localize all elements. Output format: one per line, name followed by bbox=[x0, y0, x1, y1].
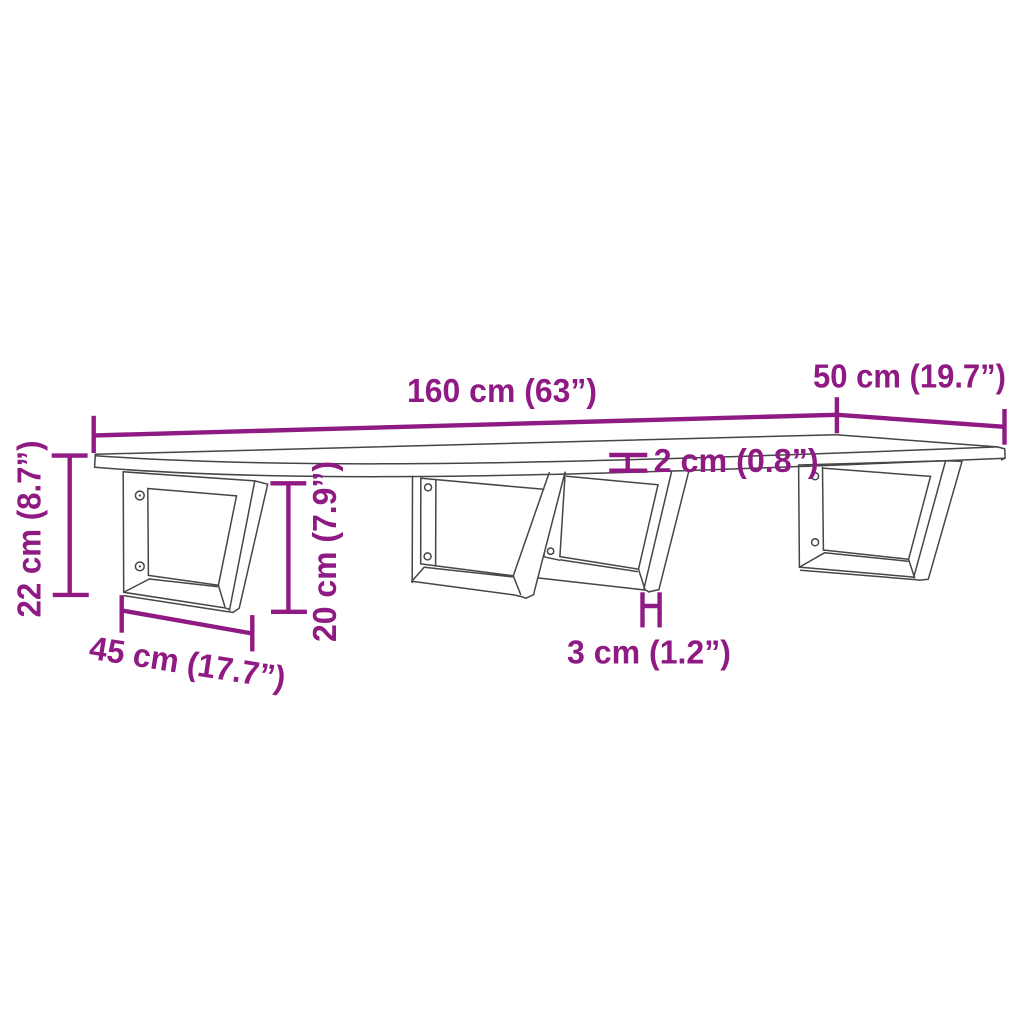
svg-text:160 cm (63”): 160 cm (63”) bbox=[407, 372, 597, 409]
svg-text:2 cm (0.8”): 2 cm (0.8”) bbox=[654, 442, 819, 479]
svg-text:45 cm (17.7”): 45 cm (17.7”) bbox=[87, 629, 288, 697]
svg-text:22 cm (8.7”): 22 cm (8.7”) bbox=[10, 441, 47, 618]
svg-text:50 cm (19.7”): 50 cm (19.7”) bbox=[813, 358, 1006, 395]
svg-text:20 cm (7.9”): 20 cm (7.9”) bbox=[306, 461, 343, 642]
svg-text:3 cm (1.2”): 3 cm (1.2”) bbox=[567, 634, 731, 671]
